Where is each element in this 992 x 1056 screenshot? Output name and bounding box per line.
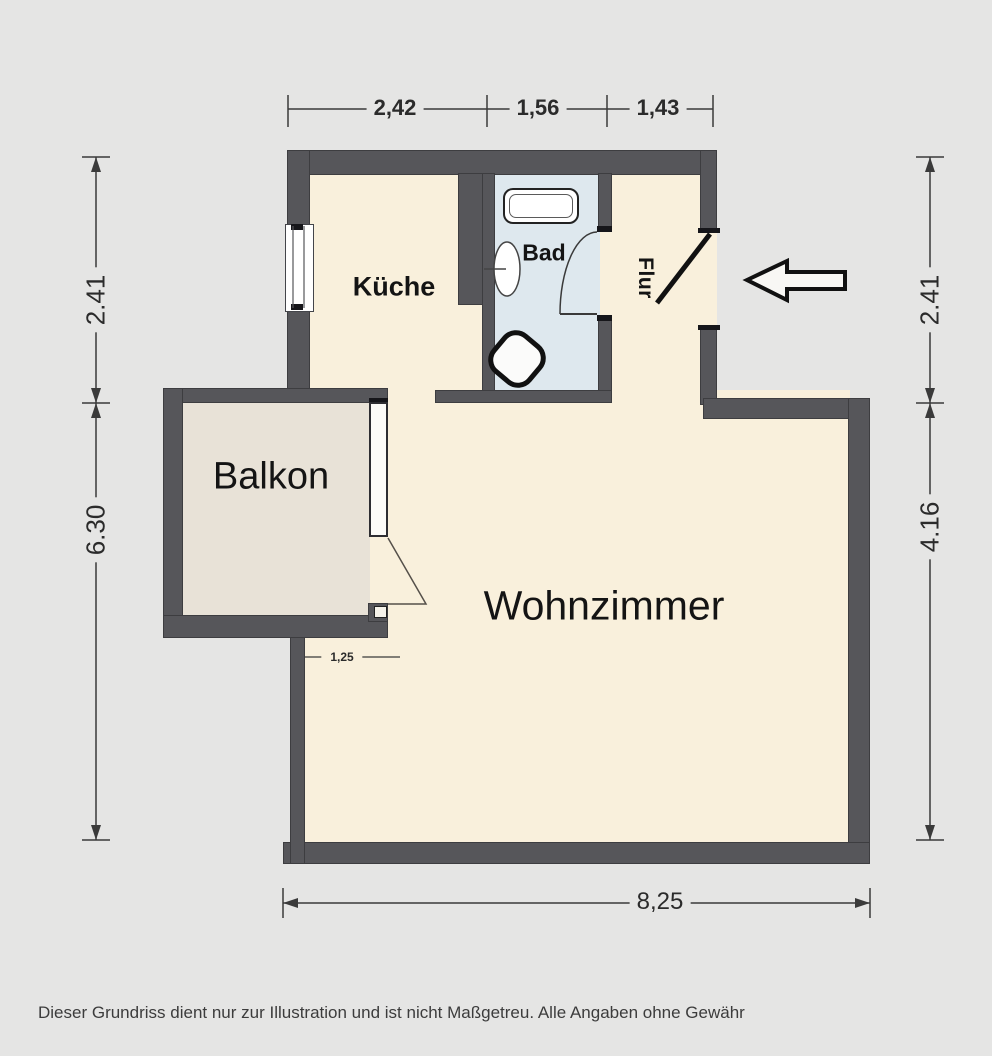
dim-left-1: 2.41 — [81, 268, 112, 333]
dim-step: 1,25 — [321, 650, 362, 664]
dim-top-2: 1,56 — [510, 95, 567, 121]
toilet-icon — [485, 327, 550, 392]
dim-top-3: 1,43 — [630, 95, 687, 121]
dimension-bottom — [283, 888, 870, 918]
room-label-bad: Bad — [522, 240, 565, 267]
plan-linework — [0, 0, 992, 1056]
room-label-kueche: Küche — [353, 272, 436, 303]
dim-left-2: 6.30 — [81, 498, 112, 563]
balcony-door-swing — [388, 538, 426, 604]
dim-right-2: 4.16 — [915, 495, 946, 560]
room-label-flur: Flur — [633, 257, 657, 299]
dim-bottom: 8,25 — [630, 888, 691, 916]
floor-plan: Küche Bad Flur Balkon Wohnzimmer 2,42 1,… — [0, 0, 992, 1056]
entrance-arrow-icon — [747, 261, 845, 300]
room-label-balkon: Balkon — [213, 456, 329, 499]
room-label-wohnzimmer: Wohnzimmer — [484, 583, 725, 630]
dim-right-1: 2.41 — [915, 268, 946, 333]
disclaimer-text: Dieser Grundriss dient nur zur Illustrat… — [38, 1003, 745, 1023]
dim-top-1: 2,42 — [367, 95, 424, 121]
entrance-door-leaf — [657, 234, 710, 303]
